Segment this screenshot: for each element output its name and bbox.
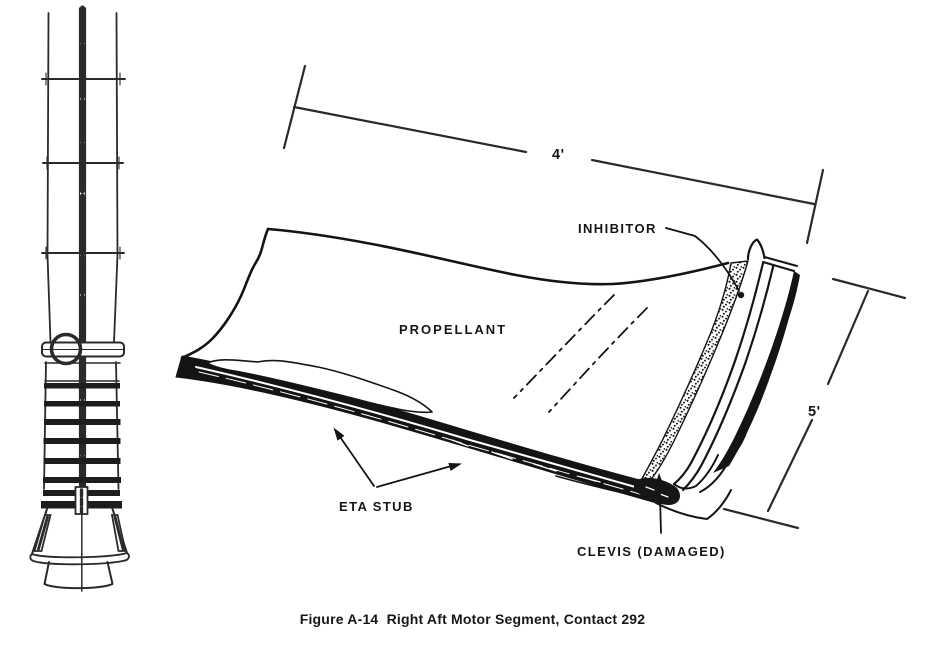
height-dimension-label: 5' xyxy=(808,404,821,420)
dimension-annotations xyxy=(284,66,905,528)
width-dimension-label: 4' xyxy=(552,147,565,163)
clevis-label: CLEVIS (DAMAGED) xyxy=(577,544,726,559)
figure-caption: Figure A-14 Right Aft Motor Segment, Con… xyxy=(0,611,945,627)
dim-5ft-tick-top xyxy=(833,279,905,298)
propellant-label: PROPELLANT xyxy=(399,322,507,337)
document-page: INHIBITOR PROPELLANT ETA STUB CLEVIS (DA… xyxy=(0,0,945,651)
surface-dash-dot-line-1 xyxy=(514,295,614,398)
fragment-left-edge xyxy=(182,229,268,358)
eta-stub-arrowhead-right xyxy=(448,463,462,471)
figure-drawing: INHIBITOR PROPELLANT ETA STUB CLEVIS (DA… xyxy=(0,0,945,651)
fragment-top-edge xyxy=(268,229,728,284)
eta-stub-arrow-right-line xyxy=(377,465,455,487)
case-rim-spike xyxy=(748,240,765,260)
booster-thumbnail-drawing xyxy=(30,8,129,591)
inhibitor-label: INHIBITOR xyxy=(578,221,657,236)
dim-4ft-line-a xyxy=(294,107,526,152)
dim-4ft-tick-right xyxy=(807,170,823,243)
eta-stub-arrowhead-left xyxy=(334,428,345,441)
surface-dash-dot-line-2 xyxy=(549,308,647,412)
eta-stub-label: ETA STUB xyxy=(339,499,414,514)
eta-stub-arrow-left-line xyxy=(338,434,374,486)
dim-4ft-line-b xyxy=(592,160,814,204)
booster-right-edge xyxy=(114,13,119,489)
dim-5ft-line-a xyxy=(828,291,868,384)
dim-5ft-tick-bottom xyxy=(724,509,798,528)
nozzle xyxy=(45,562,113,588)
dim-5ft-line-b xyxy=(768,420,812,511)
skirt-bottom-ring xyxy=(30,553,129,564)
case-rim-line-1 xyxy=(674,263,763,484)
segment-fragment-sketch xyxy=(176,229,800,519)
inhibitor-leader-dot xyxy=(738,292,744,298)
case-rim-top-cap xyxy=(763,257,797,271)
booster-left-edge xyxy=(44,13,51,489)
